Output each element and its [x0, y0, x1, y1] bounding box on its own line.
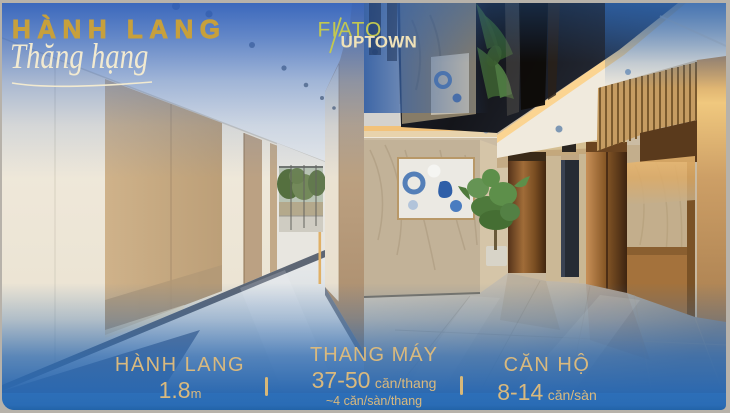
svg-text:UPTOWN: UPTOWN [341, 33, 417, 52]
